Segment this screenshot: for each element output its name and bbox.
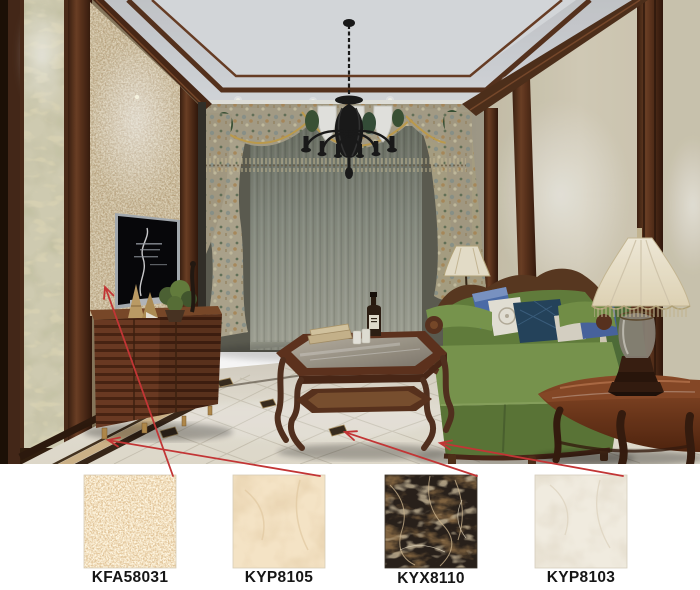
swatch-kyx8110 (385, 475, 477, 568)
swatch-kfa58031 (84, 475, 176, 568)
room-render (0, 0, 700, 494)
swatch-label: KYP8103 (547, 569, 616, 586)
showcase-svg: KFA58031 KYP8105 KYX8110 KYP8103 (0, 0, 700, 590)
swatch-kyp8103 (535, 475, 627, 568)
swatch-label: KYP8105 (245, 569, 314, 586)
vignette (0, 0, 700, 464)
swatch-row: KFA58031 KYP8105 KYX8110 KYP8103 (84, 475, 627, 587)
swatch-label: KFA58031 (92, 569, 169, 586)
swatch-kyp8105 (233, 475, 325, 568)
swatch-label: KYX8110 (397, 570, 465, 587)
product-showcase: KFA58031 KYP8105 KYX8110 KYP8103 (0, 0, 700, 590)
